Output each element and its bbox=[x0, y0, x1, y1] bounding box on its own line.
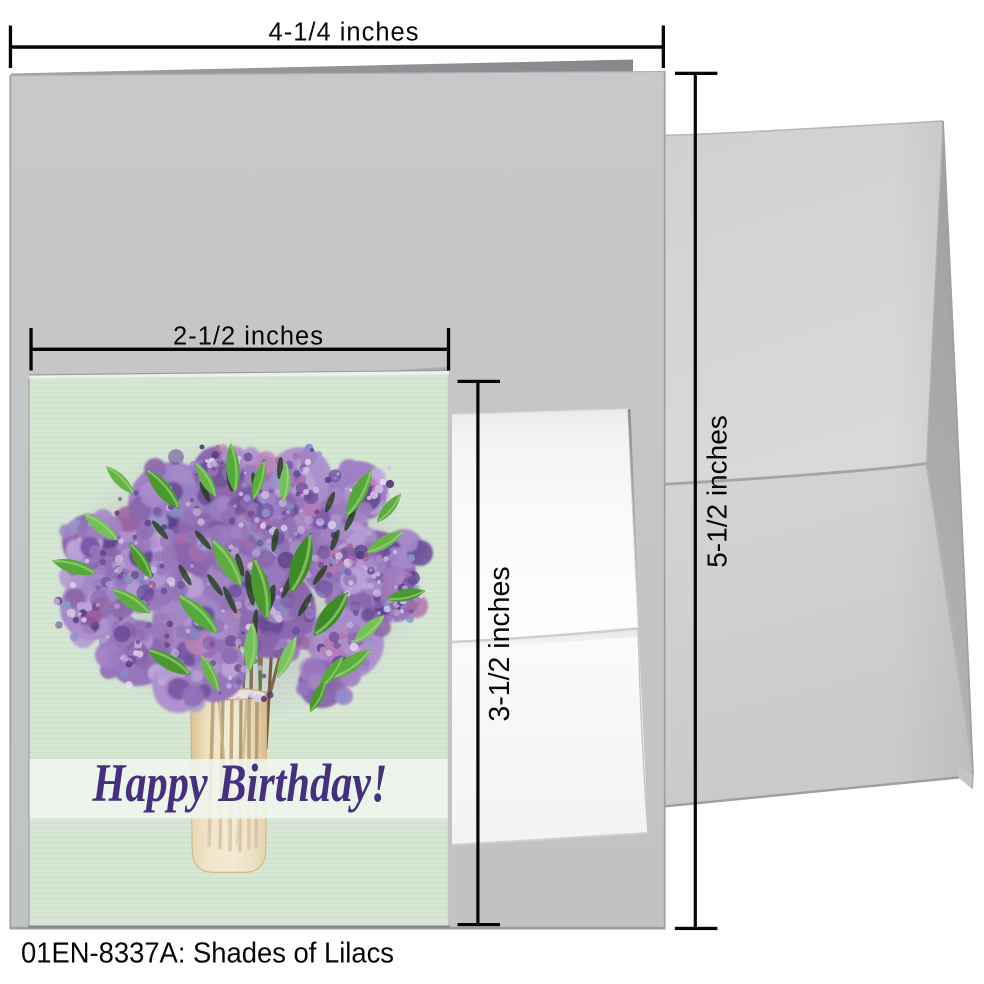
svg-text:Happy Birthday!: Happy Birthday! bbox=[92, 753, 388, 813]
svg-text:5-1/2 inches: 5-1/2 inches bbox=[702, 415, 733, 568]
svg-text:2-1/2 inches: 2-1/2 inches bbox=[173, 323, 324, 351]
svg-text:3-1/2 inches: 3-1/2 inches bbox=[484, 566, 516, 721]
svg-text:01EN-8337A: Shades of Lilacs: 01EN-8337A: Shades of Lilacs bbox=[21, 938, 394, 970]
svg-text:4-1/4 inches: 4-1/4 inches bbox=[269, 19, 420, 47]
